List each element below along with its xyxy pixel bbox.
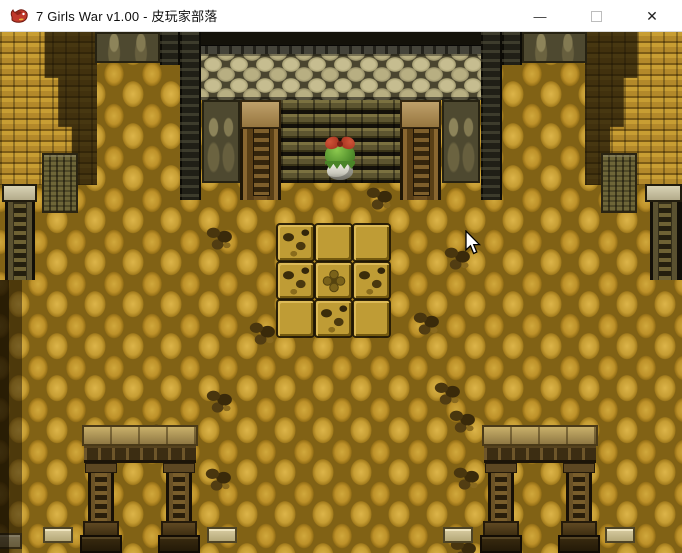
rubble-patch — [412, 310, 440, 336]
window-title: 7 Girls War v1.00 - 皮玩家部落 — [36, 6, 217, 25]
arch-pillar — [566, 463, 592, 523]
arch-frieze — [484, 446, 596, 463]
dragon-icon — [9, 7, 29, 25]
game-viewport[interactable] — [0, 32, 682, 553]
arch-pillar-plinth — [558, 535, 600, 553]
arch-frieze — [84, 446, 196, 463]
window-controls: — ✕ — [512, 0, 680, 32]
title-bar[interactable]: 7 Girls War v1.00 - 皮玩家部落 — ✕ — [0, 0, 682, 32]
close-icon: ✕ — [646, 9, 658, 23]
close-button[interactable]: ✕ — [624, 0, 680, 32]
maximize-icon — [591, 11, 602, 22]
stone-slab — [443, 527, 473, 543]
stone-slab — [207, 527, 237, 543]
rubble-patch — [204, 466, 232, 492]
arch-lintel — [482, 425, 598, 446]
stone-slab — [43, 527, 73, 543]
arrow-pointer-icon — [464, 230, 481, 256]
rubble-patch — [205, 388, 233, 414]
rubble-patch — [448, 408, 476, 434]
arch-pillar-plinth — [480, 535, 522, 553]
arch-pillar — [488, 463, 514, 523]
rubble-patch — [365, 185, 393, 211]
arch-pillar — [88, 463, 114, 523]
stone-slab — [605, 527, 635, 543]
minimize-button[interactable]: — — [512, 0, 568, 32]
arch-lintel — [82, 425, 198, 446]
stone-arch-right — [482, 425, 598, 553]
rubble-patch — [248, 320, 276, 346]
left-edge-shadow-dark — [0, 280, 9, 553]
arch-pillar-plinth — [80, 535, 122, 553]
stone-arch-left — [82, 425, 198, 553]
maximize-button[interactable] — [568, 0, 624, 32]
minimize-icon: — — [534, 10, 547, 23]
rubble-patch — [433, 380, 461, 406]
rubble-patch — [452, 465, 480, 491]
app-window: 7 Girls War v1.00 - 皮玩家部落 — ✕ — [0, 0, 682, 553]
arch-pillar — [166, 463, 192, 523]
arch-pillar-plinth — [158, 535, 200, 553]
rubble-patch — [205, 225, 233, 251]
